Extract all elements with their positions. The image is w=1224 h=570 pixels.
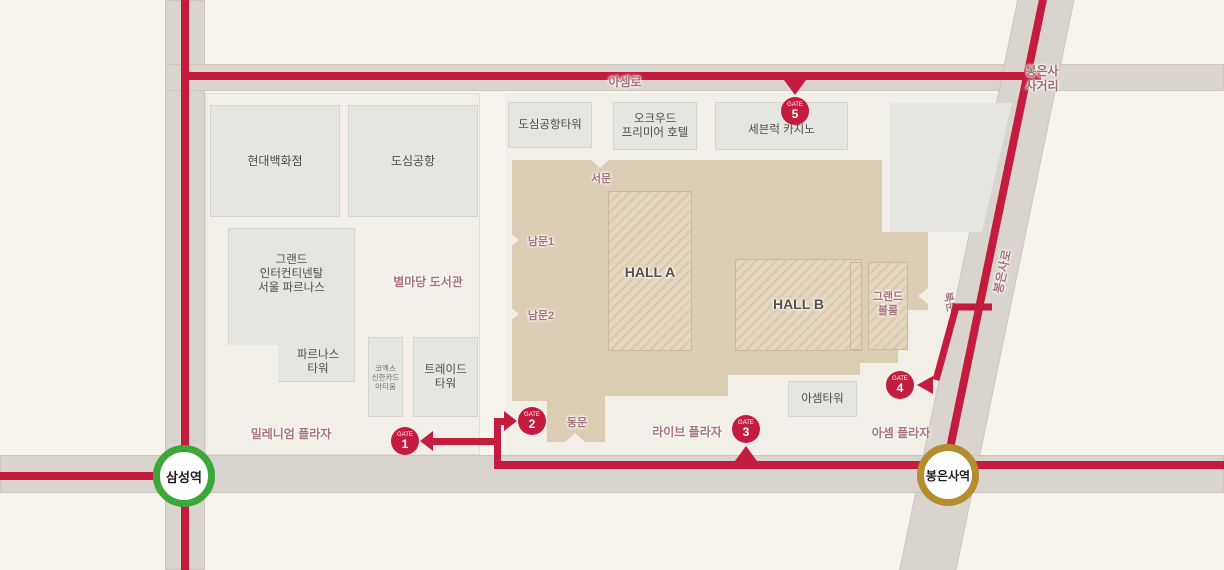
building-hyundai-dept-store: 현대백화점 — [210, 105, 340, 217]
gate4-route-path — [936, 307, 992, 380]
south2-door-notch-icon — [509, 306, 519, 322]
gate-5-badge: GATE 5 — [781, 97, 809, 125]
byeolmadang-library-label: 별마당 도서관 — [387, 273, 469, 290]
gate-1-badge: GATE 1 — [391, 427, 419, 455]
building-trade-tower: 트레이드 타워 — [413, 337, 478, 417]
hall-b-label: HALL B — [735, 296, 862, 312]
building-coex-artium: 코엑스 신한카드 아티움 — [368, 337, 403, 417]
asem-plaza-label: 아셈 플라자 — [870, 424, 932, 441]
gate5-arrow-icon — [784, 80, 806, 95]
building-oakwood-premier-hotel: 오크우드 프리미어 호텔 — [613, 102, 697, 150]
building-label: 도심공항 — [391, 154, 435, 168]
live-plaza-label: 라이브 플라자 — [650, 423, 724, 440]
south1-door-notch-icon — [509, 232, 519, 248]
gate4-arrow-icon — [917, 376, 933, 394]
south1-door-label: 남문1 — [521, 233, 561, 249]
building-city-airport-tower: 도심공항타워 — [508, 102, 592, 148]
samsung-station-badge: 삼성역 — [153, 445, 215, 507]
east-door-label: 동문 — [557, 414, 597, 430]
south2-door-label: 남문2 — [521, 307, 561, 323]
west-door-notch-icon — [590, 159, 610, 168]
bottom-red-line-right — [498, 461, 1224, 469]
gate1-route-stem — [433, 438, 501, 445]
building-parnas-tower-label: 파르나스 타워 — [283, 343, 353, 381]
building-asem-tower: 아셈타워 — [788, 381, 857, 417]
millennium-plaza-label: 밀레니엄 플라자 — [248, 425, 334, 442]
west-door-label: 서문 — [580, 170, 622, 186]
gate-4-badge: GATE 4 — [886, 371, 914, 399]
east-door-notch-icon — [565, 433, 585, 442]
bongeunsa-sageori-label: 봉은사 사거리 — [1014, 64, 1070, 94]
gate-3-badge: GATE 3 — [732, 415, 760, 443]
coex-area-map: 현대백화점 도심공항 그랜드 인터컨티넨탈 서울 파르나스 파르나스 타워 코엑… — [0, 0, 1224, 570]
gate1-arrow-icon — [420, 431, 433, 451]
gate2-route-stem — [494, 418, 504, 425]
gate2-arrow-icon — [504, 411, 517, 431]
building-city-airport: 도심공항 — [348, 105, 478, 217]
gate-2-badge: GATE 2 — [518, 407, 546, 435]
bongeunsa-station-badge: 봉은사역 — [917, 444, 979, 506]
hall-a-label: HALL A — [608, 264, 692, 280]
building-label: 현대백화점 — [247, 154, 302, 168]
gate3-arrow-icon — [735, 446, 757, 461]
asemro-road-label: 아셈로 — [600, 73, 650, 90]
